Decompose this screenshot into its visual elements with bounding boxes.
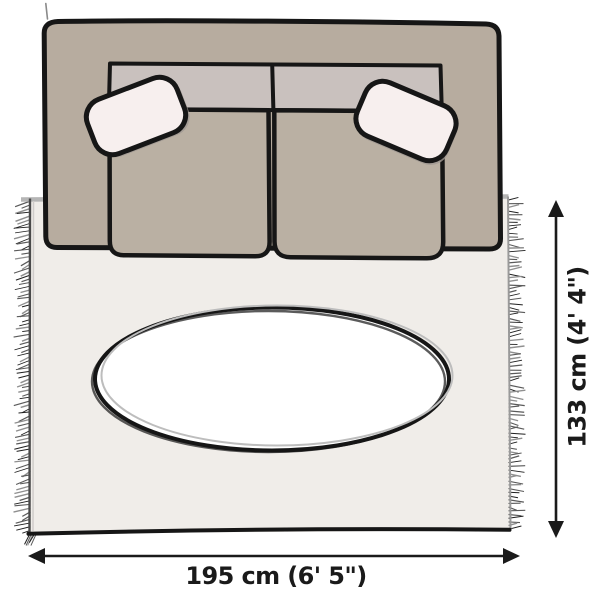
sofa-sketch-overshoot xyxy=(46,4,48,20)
diagram-canvas: 195 cm (6' 5") 133 cm (4' 4") xyxy=(0,0,600,600)
width-dimension-label: 195 cm (6' 5") xyxy=(185,562,366,590)
height-arrowhead-bottom-icon xyxy=(548,521,564,538)
sofa xyxy=(44,4,500,259)
height-dimension: 133 cm (4' 4") xyxy=(548,200,592,538)
rug-size-diagram: 195 cm (6' 5") 133 cm (4' 4") xyxy=(0,0,600,600)
width-arrowhead-right-icon xyxy=(503,548,520,564)
height-dimension-label: 133 cm (4' 4") xyxy=(564,266,592,447)
width-dimension: 195 cm (6' 5") xyxy=(28,548,520,590)
sofa-backrest-divider xyxy=(272,65,273,111)
height-arrowhead-top-icon xyxy=(548,200,564,217)
rug-oval xyxy=(92,306,453,453)
rug-edge-left-inner xyxy=(33,201,34,531)
rug-fringe-left xyxy=(14,201,31,533)
rug-edge-left xyxy=(30,199,31,534)
width-arrowhead-left-icon xyxy=(28,548,45,564)
